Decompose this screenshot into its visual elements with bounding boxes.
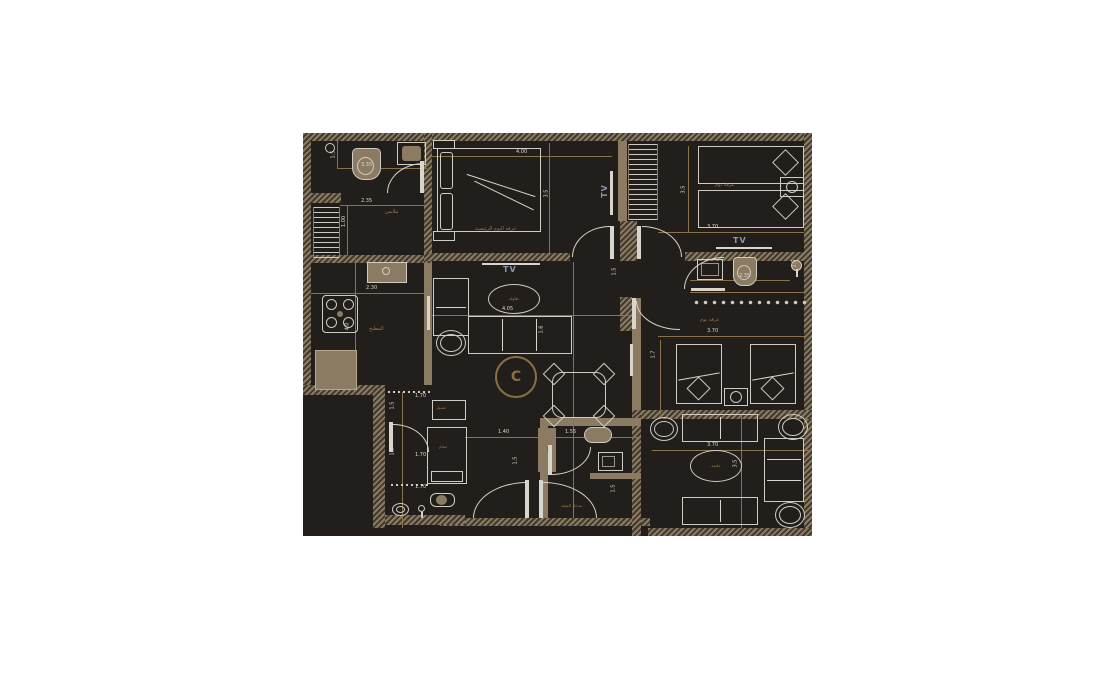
- sofa-seat-line: [767, 480, 801, 481]
- dim-label: 1.55: [565, 430, 576, 435]
- dim-label: 1.70: [415, 394, 426, 399]
- round-table: طاولة: [488, 284, 540, 314]
- dim-label: 3.5: [733, 460, 738, 468]
- dim-line: [690, 292, 805, 293]
- tv-label-master: TV: [601, 184, 609, 198]
- dim-line: [340, 205, 427, 206]
- wardrobe-hangers: [313, 207, 340, 258]
- dim-label: 1.5: [390, 402, 395, 410]
- dim-label: 1.6: [539, 326, 544, 334]
- door-arc: [572, 226, 610, 257]
- dim-label: 3.5: [681, 186, 686, 194]
- door-leaf: [632, 298, 636, 329]
- dim-line: [347, 205, 348, 255]
- door-arc: [473, 482, 527, 518]
- dim-line: [465, 437, 541, 438]
- faucet-stem: [421, 512, 423, 518]
- wardrobe-hangers: [628, 144, 658, 220]
- wall-right: [804, 133, 812, 536]
- wall-hall-pillar-mid: [620, 297, 632, 331]
- round-table-label: طاولة: [509, 297, 519, 301]
- tv-wall-mount: [610, 171, 613, 215]
- nightstand-lamp: [730, 391, 742, 403]
- dim-label: 1.7: [651, 351, 656, 359]
- nightstand-lamp: [786, 181, 798, 193]
- side-table: [782, 418, 804, 436]
- door-leaf: [691, 288, 725, 291]
- dim-label: 3.5: [544, 190, 549, 198]
- tv-wall-mount: [716, 247, 772, 249]
- washing-machine: [432, 400, 466, 420]
- shower-label: حمام: [439, 445, 447, 449]
- sofa-seat-line: [767, 459, 801, 460]
- floor-plan: TV TV جلسة TV طاولة: [303, 133, 812, 536]
- stove-center: [337, 311, 343, 317]
- dim-label: 3.70: [707, 225, 718, 230]
- side-table: [440, 334, 462, 352]
- room-label-kitchen: المطبخ: [369, 327, 384, 332]
- room-label-master: غرفة النوم الرئيسية: [475, 227, 516, 232]
- dim-line: [660, 340, 661, 414]
- door-arc: [684, 257, 724, 289]
- dim-label: 1.5: [612, 268, 617, 276]
- sofa: [764, 438, 804, 502]
- tv-label-bedroom2: TV: [733, 237, 747, 245]
- dim-label: 2.30: [366, 286, 377, 291]
- door-arc: [551, 447, 591, 475]
- stove-burner: [343, 299, 354, 310]
- door-leaf: [610, 226, 614, 259]
- room-label-bedroom2: غرفة نوم: [715, 183, 734, 188]
- door-leaf: [427, 296, 430, 330]
- sink-basin: [602, 456, 615, 467]
- dim-label: 4.05: [502, 307, 513, 312]
- sofa: [468, 316, 572, 354]
- page: TV TV جلسة TV طاولة: [0, 0, 1096, 693]
- entrance-label: مدخل الشقة: [561, 504, 582, 508]
- stove-burner: [326, 317, 337, 328]
- dim-label: 1.5: [331, 151, 336, 159]
- wall-guestwc-bottom: [590, 473, 641, 479]
- pillow: [440, 152, 453, 189]
- washing-machine-label: غسيل: [436, 406, 446, 410]
- wall-bedroom2-left: [618, 141, 627, 221]
- sofa-seat-line: [720, 417, 721, 439]
- dim-line: [311, 293, 427, 294]
- tv-label-hall: TV: [503, 266, 517, 274]
- sofa-seat-line: [720, 500, 721, 522]
- side-table: [654, 421, 674, 437]
- door-arc: [636, 301, 680, 330]
- wall-utility-bottom: [385, 515, 465, 525]
- dim-label: 4.00: [516, 150, 527, 155]
- dim-label: 4.0: [345, 323, 350, 331]
- shower-arm: [796, 269, 798, 277]
- door-leaf: [637, 226, 641, 259]
- dim-label: 1.5: [792, 260, 797, 268]
- sofa-seat-line: [536, 319, 537, 351]
- column-marker: C: [495, 356, 537, 398]
- toilet-seat: [436, 495, 447, 505]
- sink-basin: [402, 146, 421, 161]
- door-arc: [393, 424, 429, 452]
- nightstand: [433, 231, 455, 241]
- sofa-seat-line: [436, 307, 466, 308]
- pillow: [440, 193, 453, 230]
- door-arc: [642, 226, 682, 257]
- bidet: [396, 506, 405, 513]
- wall-hall-pillar-top: [620, 221, 637, 261]
- kitchen-sink-drain: [382, 267, 390, 275]
- door-leaf: [548, 445, 552, 475]
- dim-label: 2.35: [739, 274, 750, 279]
- dim-label: 1.70: [415, 485, 426, 490]
- column-marker-letter: C: [511, 369, 521, 385]
- toilet: [584, 427, 612, 443]
- dim-line: [658, 232, 804, 233]
- door-leaf: [539, 480, 543, 518]
- wall-left: [303, 133, 311, 395]
- closet-hanger-row: [692, 296, 806, 309]
- dim-label: 1.00: [342, 216, 347, 227]
- dim-line: [549, 143, 550, 253]
- dim-label: 3.35: [361, 163, 372, 168]
- door-leaf: [420, 161, 424, 193]
- wall-bath-tl-bottom: [311, 193, 341, 203]
- wall-bottom-center: [440, 518, 650, 526]
- dim-line: [658, 336, 805, 337]
- faucet-icon: [418, 505, 425, 512]
- side-table: [779, 506, 801, 524]
- wall-master-bottom: [424, 253, 570, 261]
- dim-line: [337, 140, 338, 168]
- room-label-bedroom3: غرفة نوم: [700, 318, 719, 323]
- tv-wall-mount: [630, 344, 633, 376]
- dim-label: 3.70: [707, 443, 718, 448]
- stove-burner: [326, 299, 337, 310]
- dim-label: 1.5: [611, 485, 616, 493]
- wall-utility-left: [373, 388, 385, 528]
- dim-line: [688, 146, 689, 232]
- shower-tray: [431, 471, 463, 482]
- door-arc: [543, 482, 597, 518]
- wall-bottom-right: [648, 528, 812, 536]
- coffee-table-label: جلسة: [711, 464, 721, 468]
- dim-label: 1.40: [498, 430, 509, 435]
- dim-label: 3.70: [707, 329, 718, 334]
- dim-label: 1.70: [415, 453, 426, 458]
- dim-label: 1.5: [513, 457, 518, 465]
- wall-top: [303, 133, 812, 141]
- kitchen-counter: [315, 350, 357, 390]
- nightstand: [433, 140, 455, 149]
- dim-label: 1.5: [390, 448, 395, 456]
- door-leaf: [525, 480, 529, 518]
- sofa-seat-line: [502, 319, 503, 351]
- dim-label: 2.35: [361, 199, 372, 204]
- room-label-dressing: ملابس: [385, 210, 398, 215]
